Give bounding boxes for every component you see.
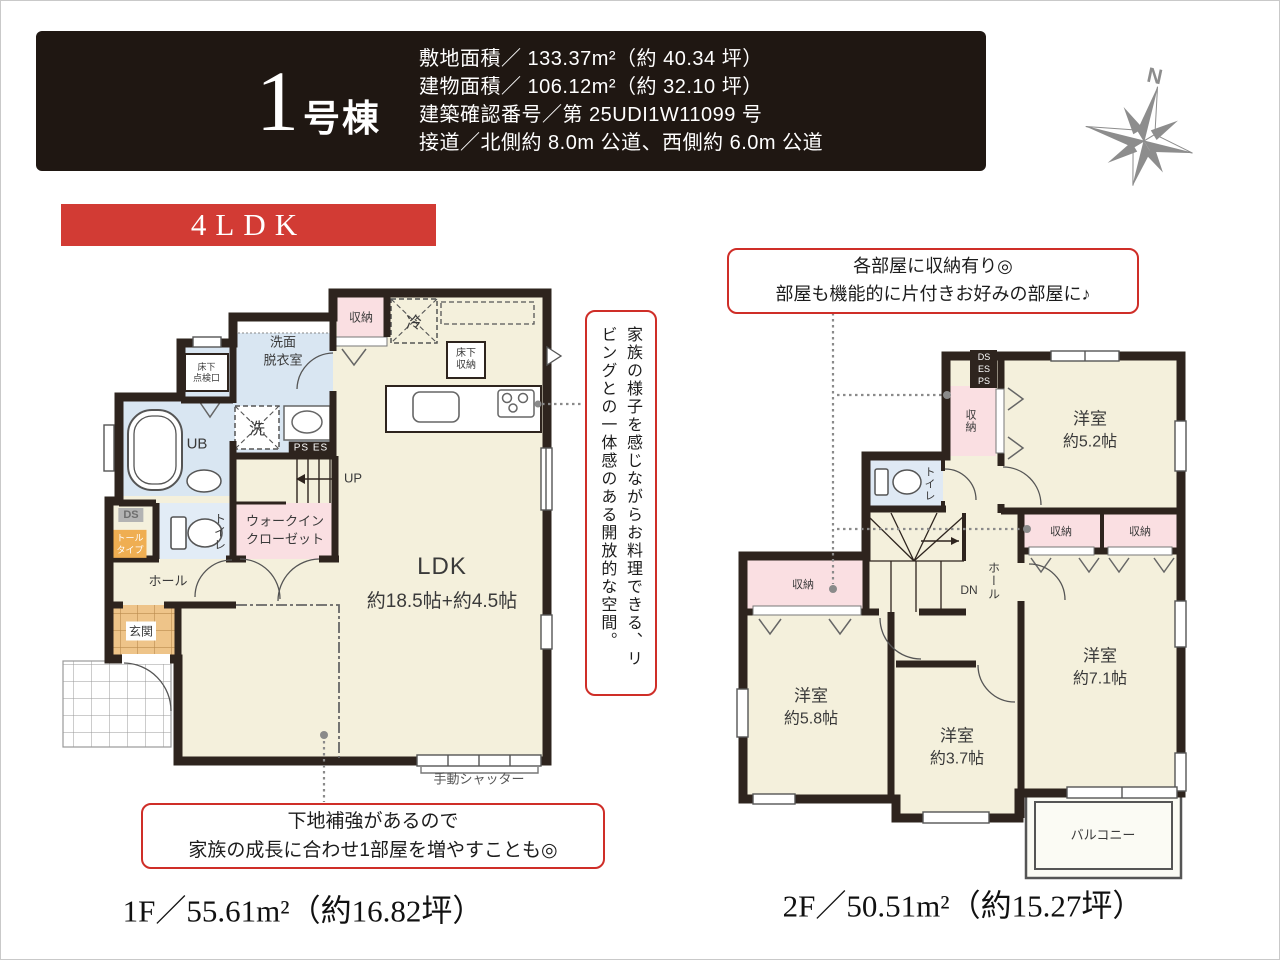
room37-l1: 洋室 bbox=[930, 726, 984, 749]
callout-reinforce-line2: 家族の成長に合わせ1部屋を増やすことも◎ bbox=[188, 836, 557, 865]
label-1f-hatch: 床下 点検口 bbox=[184, 353, 229, 392]
label-1f-ps-es: PS ES bbox=[289, 442, 333, 455]
building-unit: 号棟 bbox=[303, 88, 381, 142]
callout-storage-line1: 各部屋に収納有り◎ bbox=[853, 253, 1013, 281]
washbasin-icon bbox=[284, 406, 330, 440]
label-2f-room58: 洋室 約5.8帖 bbox=[784, 686, 838, 731]
callout-storage-line2: 部屋も機能的に片付きお好みの部屋に♪ bbox=[776, 281, 1091, 309]
label-1f-shutter: 手動シャッター bbox=[433, 769, 524, 788]
room52-l1: 洋室 bbox=[1063, 409, 1117, 432]
spec-building-area: 建物面積／ 106.12m²（約 32.10 坪） bbox=[419, 73, 823, 101]
label-2f-balcony: バルコニー bbox=[1071, 825, 1136, 844]
layout-badge: 4LDK bbox=[61, 204, 436, 246]
ldk-l2: 約18.5帖+約4.5帖 bbox=[367, 589, 518, 615]
label-1f-underfloor-storage: 床下 収納 bbox=[446, 341, 486, 379]
label-2f-ps: PS bbox=[978, 375, 991, 387]
label-2f-storage-mid2: 収納 bbox=[1129, 523, 1151, 539]
room71-l1: 洋室 bbox=[1073, 646, 1127, 669]
label-2f-storage-mid1: 収納 bbox=[1050, 523, 1072, 539]
label-1f-entrance: 玄関 bbox=[126, 622, 156, 641]
label-2f-toilet: トイレ bbox=[921, 466, 937, 502]
underfloor-storage-l2: 収納 bbox=[456, 360, 476, 372]
callout-kitchen: 家族の様子を感じながらお料理できる、リビングとの一体感のある開放的な空間。 bbox=[585, 310, 657, 696]
hatch-l1: 床下 bbox=[197, 362, 215, 373]
label-1f-washroom: 洗面 脱衣室 bbox=[263, 333, 302, 368]
label-1f-ldk: LDK 約18.5帖+約4.5帖 bbox=[367, 551, 518, 615]
label-2f-dn: DN bbox=[960, 583, 977, 597]
washroom-l2: 脱衣室 bbox=[263, 351, 302, 369]
building-number: 1 bbox=[256, 58, 299, 144]
label-2f-room52: 洋室 約5.2帖 bbox=[1063, 409, 1117, 454]
label-2f-room37: 洋室 約3.7帖 bbox=[930, 726, 984, 771]
room58-l2: 約5.8帖 bbox=[784, 709, 838, 731]
label-2f-storage-top: 収納 bbox=[962, 409, 978, 433]
room52-l2: 約5.2帖 bbox=[1063, 432, 1117, 454]
label-1f-storage: 収納 bbox=[349, 309, 373, 326]
tall-l1: トール bbox=[116, 532, 143, 544]
spec-land-area: 敷地面積／ 133.37m²（約 40.34 坪） bbox=[419, 45, 823, 73]
callout-reinforce: 下地補強があるので 家族の成長に合わせ1部屋を増やすことも◎ bbox=[141, 803, 605, 869]
room58-l1: 洋室 bbox=[784, 686, 838, 709]
callout-storage: 各部屋に収納有り◎ 部屋も機能的に片付きお好みの部屋に♪ bbox=[727, 248, 1139, 314]
wic-l2: クローゼット bbox=[246, 530, 324, 548]
header-banner: 1 号棟 敷地面積／ 133.37m²（約 40.34 坪） 建物面積／ 106… bbox=[36, 31, 986, 171]
label-2f-storage-left: 収納 bbox=[792, 576, 814, 592]
label-1f-washer: 洗 bbox=[249, 415, 265, 439]
label-1f-tall-type: トール タイプ bbox=[113, 530, 146, 558]
tall-l2: タイプ bbox=[116, 544, 143, 556]
label-1f-wic: ウォークイン クローゼット bbox=[246, 512, 324, 547]
toilet-icon-2f bbox=[875, 469, 921, 495]
room71-l2: 約7.1帖 bbox=[1073, 669, 1127, 691]
washroom-l1: 洗面 bbox=[263, 333, 302, 351]
label-1f-fridge: 冷 bbox=[406, 309, 422, 333]
room37-l2: 約3.7帖 bbox=[930, 749, 984, 771]
compass-icon bbox=[1075, 72, 1206, 198]
hatch-l2: 点検口 bbox=[193, 373, 220, 384]
label-1f-up: UP bbox=[344, 471, 362, 486]
label-2f-room71: 洋室 約7.1帖 bbox=[1073, 646, 1127, 691]
label-2f-es: ES bbox=[978, 363, 991, 375]
stove-icon bbox=[498, 390, 534, 417]
label-2f-ds: DS bbox=[978, 351, 991, 363]
label-1f-unit-bath: UB bbox=[187, 436, 208, 453]
property-specs: 敷地面積／ 133.37m²（約 40.34 坪） 建物面積／ 106.12m²… bbox=[419, 45, 823, 157]
label-2f-hall: ホール bbox=[986, 562, 1003, 601]
wic-l1: ウォークイン bbox=[246, 512, 324, 530]
ldk-l1: LDK bbox=[367, 551, 518, 583]
entrance-porch bbox=[63, 661, 171, 747]
callout-reinforce-line1: 下地補強があるので bbox=[287, 807, 458, 836]
floor1-area-label: 1F／55.61m²（約16.82坪） bbox=[123, 886, 484, 931]
spec-road-access: 接道／北側約 8.0m 公道、西側約 6.0m 公道 bbox=[419, 129, 823, 157]
floor2-area-label: 2F／50.51m²（約15.27坪） bbox=[783, 881, 1144, 926]
underfloor-storage-l1: 床下 bbox=[456, 348, 476, 360]
label-1f-hall: ホール bbox=[148, 571, 187, 590]
flyer-page: 1 号棟 敷地面積／ 133.37m²（約 40.34 坪） 建物面積／ 106… bbox=[0, 0, 1280, 960]
label-1f-toilet: トイレ bbox=[212, 513, 229, 552]
kitchen-sink-icon bbox=[413, 392, 459, 422]
label-2f-ds-es-ps: DS ES PS bbox=[978, 351, 991, 387]
spec-confirmation-number: 建築確認番号／第 25UDI1W11099 号 bbox=[419, 101, 823, 129]
label-1f-ds: DS bbox=[118, 508, 143, 522]
